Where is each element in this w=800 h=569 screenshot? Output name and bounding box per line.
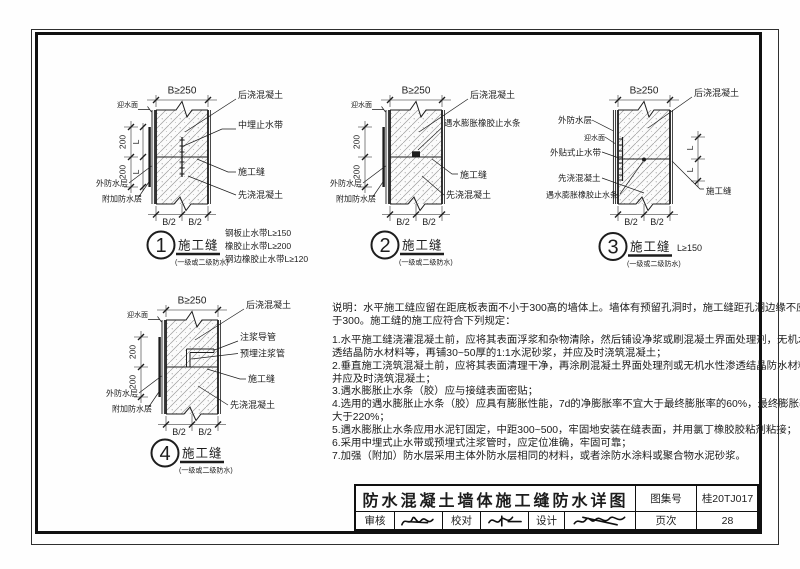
label-post-concrete: 后浇混凝土 [470,89,515,100]
reviewer-signature [399,513,439,528]
label-post-concrete: 后浇混凝土 [238,89,283,100]
label-mid-waterstop: 中埋止水带 [238,119,283,130]
dim-bottom-left: B/2 [624,217,638,227]
dim-200-bottom: 200 [118,165,128,179]
label-post-concrete: 后浇混凝土 [694,87,739,98]
dim-l-bottom: L [685,167,695,172]
label-construction-joint: 施工缝 [238,166,265,177]
detail-3-figure: B≥250 B/2 B/2 L L 外防水层 迎水面 外贴式止水带 先浇混凝土 … [546,80,781,276]
note-line: 透结晶防水材料等，再铺30~50厚的1:1水泥砂浆，并应及时浇筑混凝土； [332,348,766,361]
side-note-2: 橡胶止水带L≥200 [225,241,291,251]
caption-text: 施工缝 [630,239,671,254]
dim-l-top: L [685,145,695,150]
note-line: 说明：水平施工缝应留在距底板表面不小于300高的墙体上。墙体有预留孔洞时，施工缝… [332,303,766,316]
detail-1-figure: B≥250 B/2 B/2 200 200 L L 迎水面 后浇混凝土 中埋止水… [88,80,338,272]
label-water-face: 迎水面 [127,310,148,319]
wall-section [150,102,211,211]
dim-200-bottom: 200 [352,165,362,179]
note-line: 2.垂直施工浇筑混凝土前，应将其表面清理干净，再涂刷混凝土界面处理剂或无机水性渗… [332,361,766,374]
note-line: 3.遇水膨胀止水条（胶）应与接缝表面密贴； [332,386,766,399]
label-outer-waterproof: 外防水层 [330,178,362,188]
design-label: 设计 [528,511,564,529]
label-swelling-strip: 遇水膨胀橡胶止水条 [444,118,521,128]
label-pre-concrete: 先浇混凝土 [446,189,491,200]
drawing-sheet: B≥250 B/2 B/2 200 200 L L 迎水面 后浇混凝土 中埋止水… [0,0,800,569]
caption-text: 施工缝 [178,238,219,253]
detail-number: 4 [159,443,170,465]
label-water-face: 迎水面 [117,100,138,109]
label-swelling-strip: 遇水膨胀橡胶止水条 [546,190,618,200]
swelling-strip-dot [642,158,646,162]
caption: 4 施工缝 (一级或二级防水) [152,440,233,475]
caption: 1 施工缝 (一级或二级防水) 钢板止水带L≥150 橡胶止水带L≥200 钢边… [148,228,309,267]
dim-top: B≥250 [630,86,659,97]
proofreader-signature [485,513,525,528]
label-external-waterstop: 外贴式止水带 [550,148,602,158]
detail-number: 3 [607,237,618,259]
label-water-face: 迎水面 [351,100,372,109]
atlas-number-value: 桂20TJ017 [696,486,758,511]
caption-sub: (一级或二级防水) [175,258,229,267]
note-line: 6.采用中埋式止水带或预埋式注浆管时，应定位准确，牢固可靠； [332,438,766,451]
designer-signature [572,513,628,528]
dim-200-top: 200 [128,345,138,359]
dim-l-top: L [131,139,141,144]
review-label: 审核 [356,511,394,529]
side-note-3: 钢边橡胶止水带L≥120 [225,254,308,264]
dim-bottom-right: B/2 [198,427,212,437]
dim-200-top: 200 [118,135,128,149]
swelling-waterstop-strip-symbol [412,151,420,156]
dim-bottom-left: B/2 [396,217,410,227]
dim-top: B≥250 [402,86,431,97]
detail-2-figure: B≥250 B/2 B/2 200 200 迎水面 后浇混凝土 遇水膨胀橡胶止水… [322,80,544,272]
dim-bottom-right: B/2 [650,217,664,227]
page-number-value: 28 [696,511,758,529]
label-outer-waterproof: 外防水层 [106,388,138,398]
note-line: 7.加强（附加）防水层采用主体外防水层相同的材料，或者涂防水涂料或聚合物水泥砂浆… [332,451,766,464]
note-line: 1.水平施工缝浇灌混凝土前，应将其表面浮浆和杂物清除，然后铺设净浆或刷混凝土界面… [332,335,766,348]
design-signature-cell [564,511,635,529]
label-additional-waterproof: 附加防水层 [336,194,376,204]
label-outer-waterproof: 外防水层 [96,178,128,188]
note-line: 大于220%； [332,412,766,425]
outer-waterproof-layer [386,110,388,204]
detail-number: 2 [379,235,390,257]
proof-label: 校对 [442,511,480,529]
caption-sub: (一级或二级防水) [627,259,681,268]
dim-bottom-right: B/2 [422,217,436,227]
label-water-face: 迎水面 [584,133,605,142]
review-signature-cell [394,511,442,529]
caption-text: 施工缝 [402,238,443,253]
label-pre-concrete: 先浇混凝土 [230,399,275,410]
caption-sub: (一级或二级防水) [399,258,453,267]
side-note-1: 钢板止水带L≥150 [225,228,291,238]
caption-text: 施工缝 [182,446,223,461]
caption-sub: (一级或二级防水) [179,466,233,475]
note-line: 5.遇水膨胀止水条应用水泥钉固定，中距300~500，牢固地安装在缝表面，并用氯… [332,425,766,438]
detail-number: 1 [155,235,166,257]
proof-signature-cell [480,511,528,529]
dim-top: B≥250 [168,86,197,97]
label-outer-waterproof: 外防水层 [558,115,592,125]
page-number-label: 页次 [635,511,696,529]
label-post-concrete: 后浇混凝土 [246,299,291,310]
note-line: 并应及时浇筑混凝土； [332,374,766,387]
label-additional-waterproof: 附加防水层 [112,404,152,414]
detail-4-figure: B≥250 B/2 B/2 200 200 迎水面 后浇混凝土 注浆导管 预埋注… [98,290,338,482]
label-grout-pipe: 预埋注浆管 [240,348,285,359]
note-line: 4.选用的遇水膨胀止水条（胶）应具有膨胀性能，7d的净膨胀率不宜大于最终膨胀率的… [332,399,766,412]
dim-bottom-right: B/2 [188,217,202,227]
title-block: 防水混凝土墙体施工缝防水详图 图集号 桂20TJ017 审核 校对 设计 页次 … [354,484,759,531]
label-additional-waterproof: 附加防水层 [102,194,142,204]
label-construction-joint: 施工缝 [460,169,487,180]
dim-200-bottom: 200 [128,375,138,389]
label-construction-joint: 施工缝 [706,186,732,196]
caption-note: L≥150 [677,243,702,253]
sheet-title: 防水混凝土墙体施工缝防水详图 [356,486,635,511]
dim-200-top: 200 [352,135,362,149]
atlas-number-label: 图集号 [635,486,696,511]
outer-waterproof-layer [162,320,164,414]
caption: 2 施工缝 (一级或二级防水) [372,232,453,267]
dim-top: B≥250 [178,296,207,307]
label-pre-concrete: 先浇混凝土 [238,189,283,200]
dim-bottom-left: B/2 [172,427,186,437]
notes-block: 说明：水平施工缝应留在距底板表面不小于300高的墙体上。墙体有预留孔洞时，施工缝… [332,303,766,464]
note-line: 于300。施工缝的施工应符合下列规定： [332,316,766,329]
label-pre-concrete: 先浇混凝土 [558,173,601,183]
dim-l-bottom: L [131,169,141,174]
caption: 3 施工缝 L≥150 (一级或二级防水) [600,233,702,268]
label-grout-guide: 注浆导管 [240,331,276,342]
label-construction-joint: 施工缝 [248,373,275,384]
outer-waterproof-layer [152,110,154,204]
dim-bottom-left: B/2 [162,217,176,227]
